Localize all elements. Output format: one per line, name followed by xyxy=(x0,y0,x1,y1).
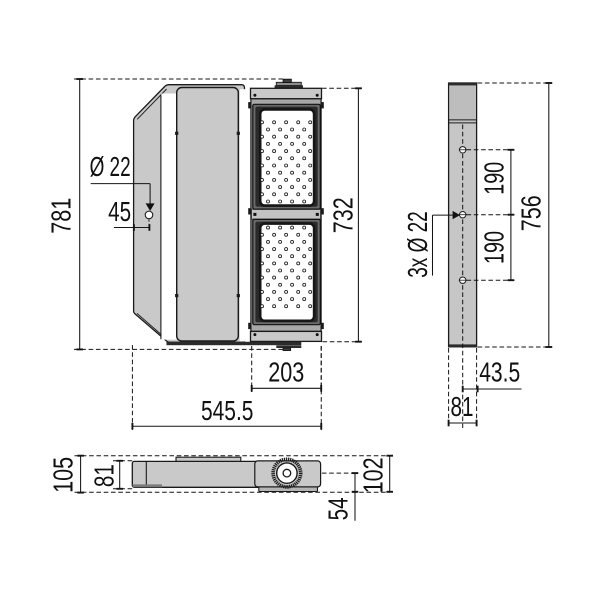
svg-text:203: 203 xyxy=(268,357,304,388)
svg-text:545.5: 545.5 xyxy=(201,395,254,426)
svg-text:781: 781 xyxy=(45,198,76,234)
svg-text:3x Ø 22: 3x Ø 22 xyxy=(402,211,433,278)
svg-text:732: 732 xyxy=(327,197,358,233)
svg-text:81: 81 xyxy=(89,464,120,487)
svg-text:102: 102 xyxy=(357,457,388,493)
svg-text:190: 190 xyxy=(479,162,510,195)
svg-text:45: 45 xyxy=(108,196,131,227)
svg-text:81: 81 xyxy=(451,391,474,422)
svg-text:105: 105 xyxy=(48,457,79,493)
svg-text:756: 756 xyxy=(515,195,546,231)
svg-text:54: 54 xyxy=(322,497,353,520)
svg-text:190: 190 xyxy=(479,231,510,264)
svg-text:43.5: 43.5 xyxy=(479,356,520,387)
svg-text:Ø 22: Ø 22 xyxy=(90,151,131,182)
